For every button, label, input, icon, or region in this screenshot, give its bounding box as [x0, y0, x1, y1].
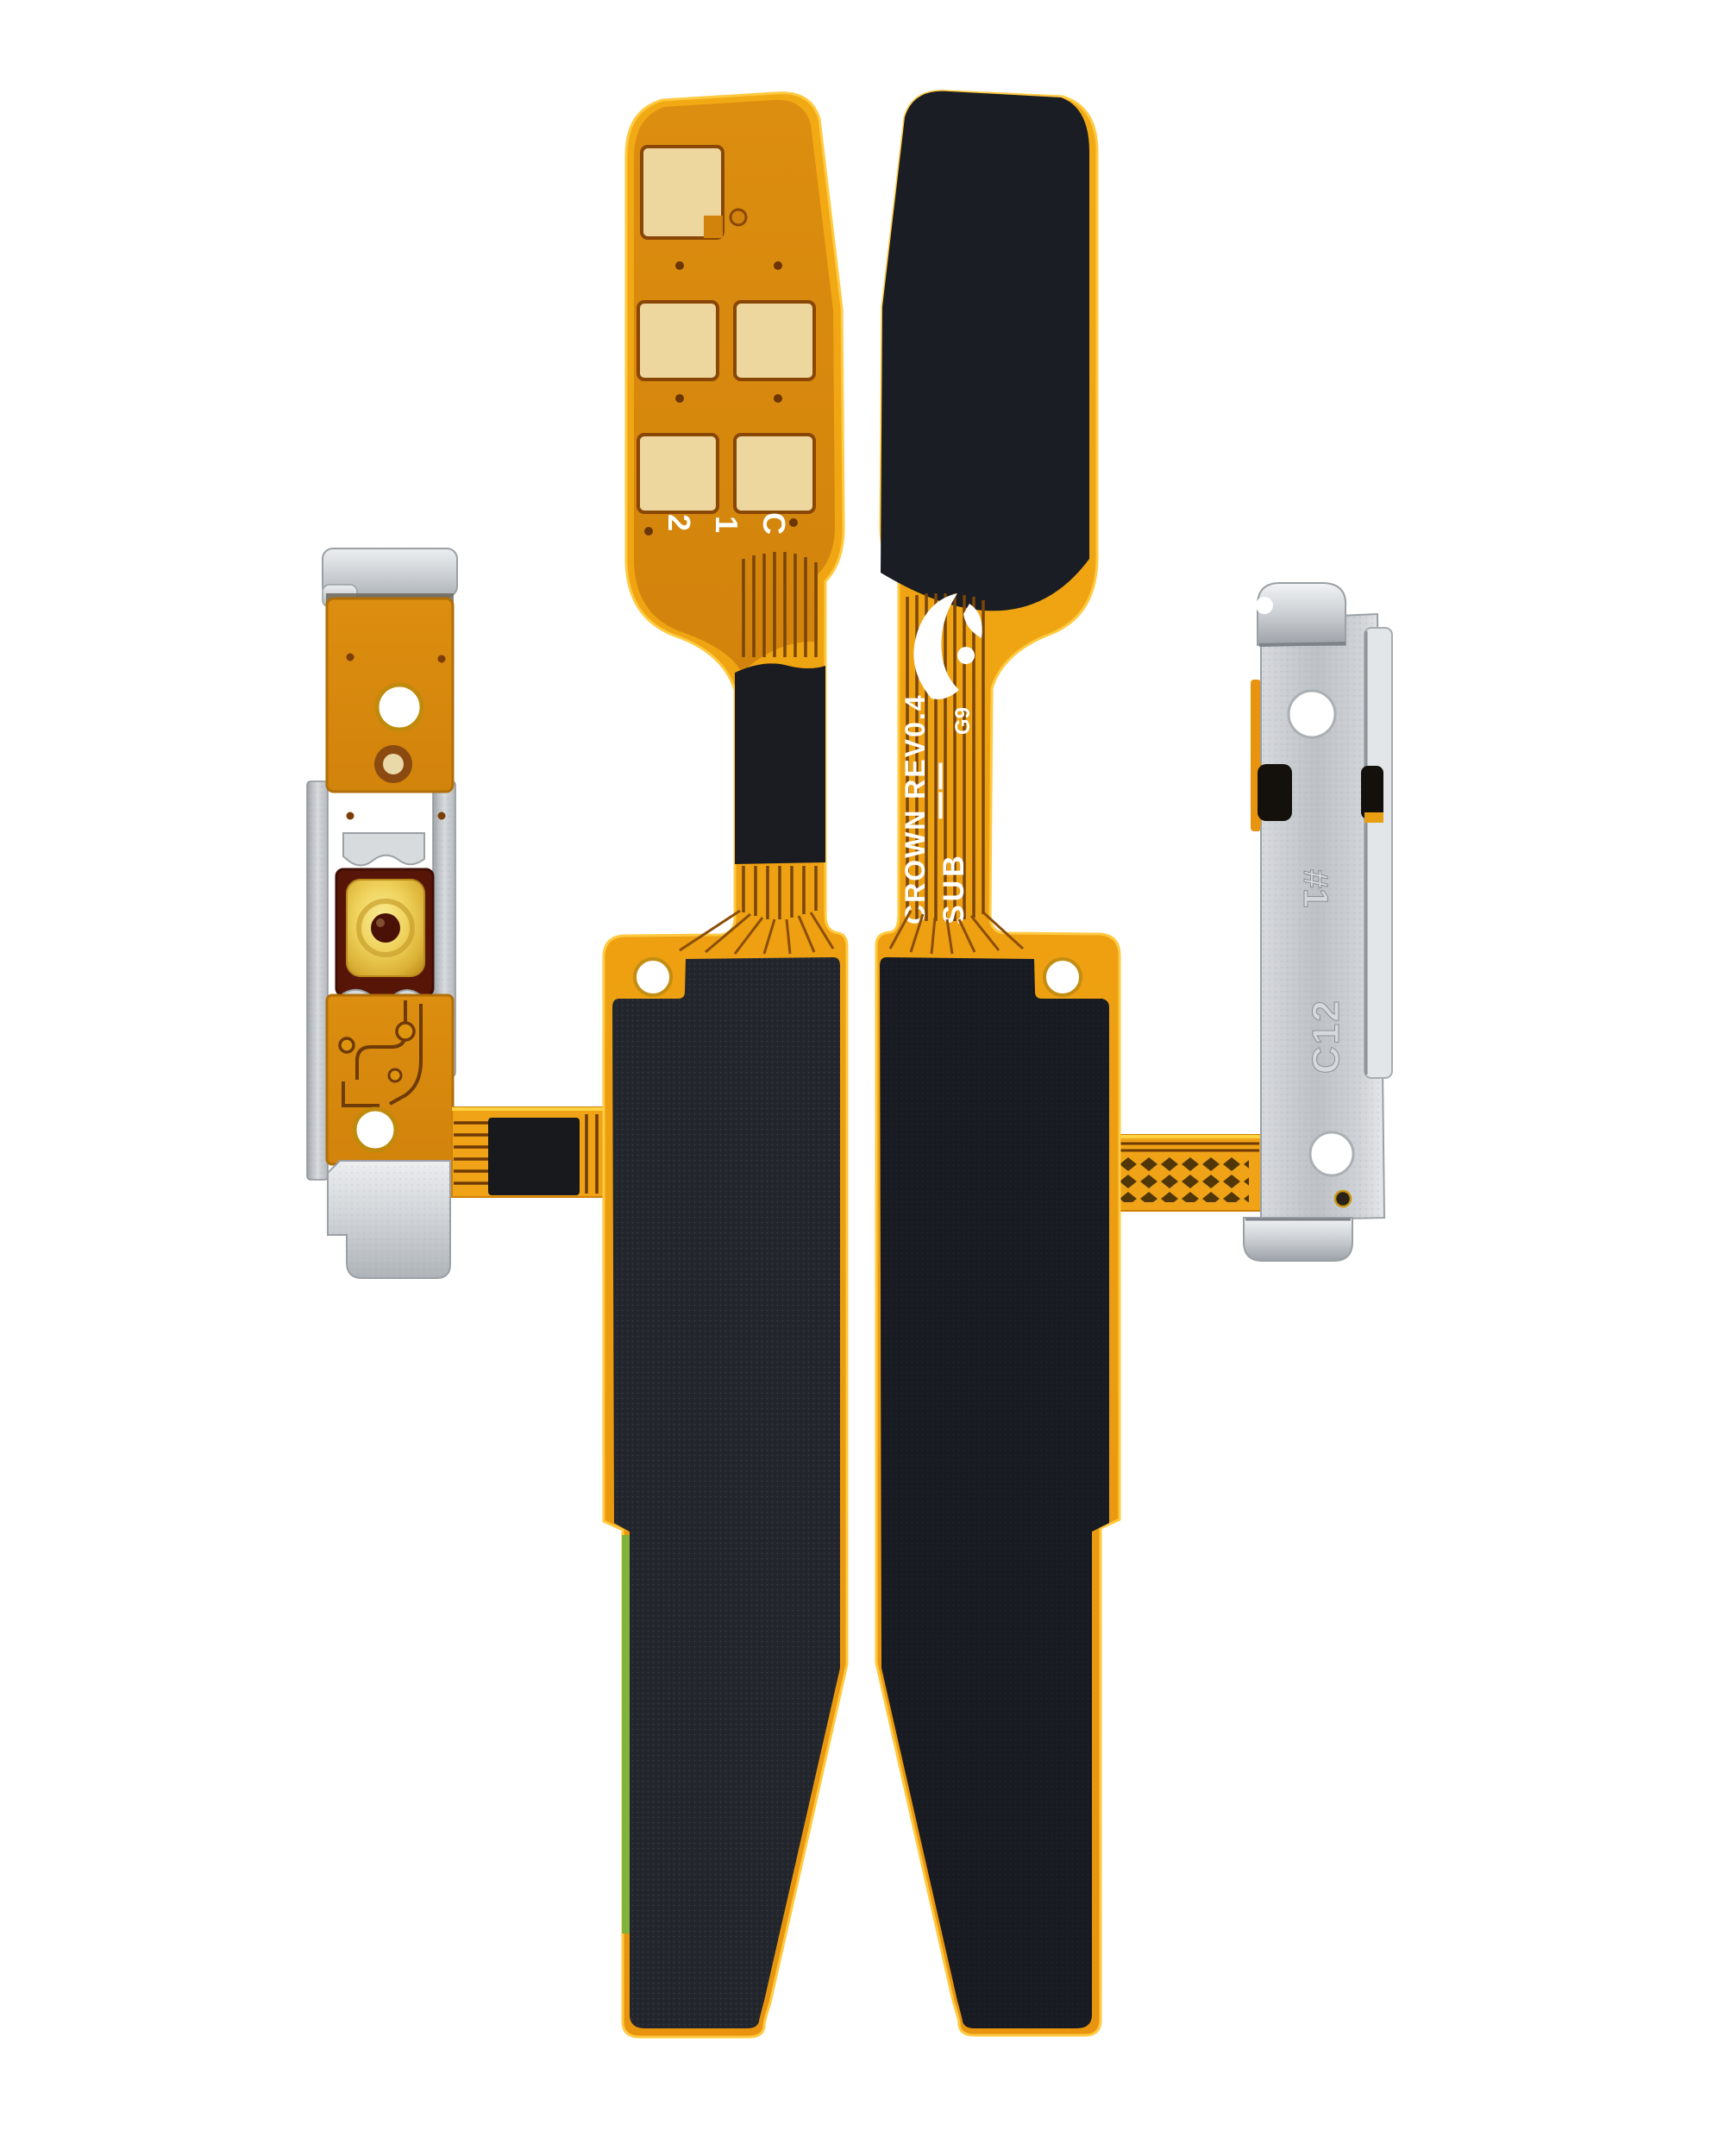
arm-trace-hatch [1114, 1154, 1249, 1202]
flex-marking-sub: SUB [938, 852, 970, 924]
flex-marking-tick-2: | [937, 787, 944, 818]
curl-shadow [1259, 643, 1345, 645]
bracket-screw-hole [1310, 1132, 1353, 1175]
rail-texture [307, 781, 328, 1180]
flex-marking-tick-1: | [937, 758, 944, 789]
drill-dot [347, 654, 354, 661]
neck-sponge-strip [735, 663, 825, 864]
curl-opening [1256, 597, 1273, 614]
alignment-hole [377, 685, 422, 730]
dome-highlight [376, 918, 385, 927]
pad-ring-hole [731, 210, 746, 225]
flex-cable-back: CROWN REV0.4 SUB | | G9 [876, 91, 1275, 2035]
drill-dot [347, 812, 354, 820]
alignment-hole [635, 959, 671, 995]
flex-marking-code: G9 [951, 707, 975, 735]
head-sponge-back [881, 91, 1089, 611]
pad-label-c: C [756, 512, 792, 535]
gold-test-pad [383, 754, 404, 774]
small-hole [1335, 1191, 1351, 1206]
bracket-slot-left [1258, 764, 1292, 821]
pad-label-1: 1 [709, 516, 744, 533]
product-photo: 2 1 C [0, 0, 1725, 2156]
side-bracket: #1 C12 [1244, 583, 1392, 1261]
contact-pad [638, 302, 718, 379]
flex-marking-crown: CROWN REV0.4 [900, 693, 931, 924]
slot-flex-edge [1364, 812, 1383, 823]
bracket-top-curl [1258, 583, 1345, 645]
via-hole [340, 1038, 354, 1052]
via-hole [389, 1069, 401, 1081]
contact-pad [735, 435, 814, 512]
alignment-hole [354, 1109, 396, 1150]
pad-label-2: 2 [662, 514, 697, 531]
bracket-stamp-number: #1 [1296, 869, 1334, 908]
drill-dot [438, 812, 446, 820]
bracket-screw-hole [1289, 691, 1335, 737]
flex-cable-illustration: 2 1 C [0, 0, 1725, 2156]
bracket-slot-right [1361, 766, 1383, 819]
power-button-switch-assembly [307, 548, 457, 1278]
bracket-engraving-c12: C12 [1305, 999, 1347, 1074]
via-hole [397, 1023, 414, 1040]
contact-pad [735, 302, 814, 379]
arm-component-sponge [488, 1118, 580, 1195]
alignment-hole [1044, 959, 1081, 995]
sponge-speckle-texture [612, 957, 840, 2028]
bracket-flange [1364, 628, 1392, 1078]
switch-clip-top [343, 833, 424, 866]
flex-cable-front: 2 1 C [452, 93, 847, 2037]
drill-dot [438, 655, 446, 663]
dome-center [371, 913, 400, 943]
pad-notch [704, 216, 723, 238]
sponge-texture [880, 957, 1109, 2028]
bracket-bottom-hook [1244, 1218, 1352, 1261]
contact-pad [638, 435, 718, 512]
